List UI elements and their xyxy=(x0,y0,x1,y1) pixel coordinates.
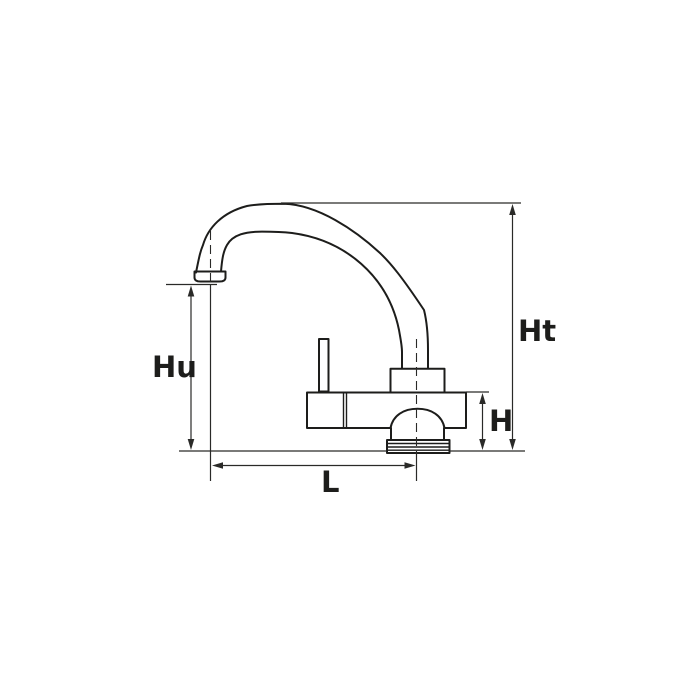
handle-lever xyxy=(319,339,329,392)
label-l: L xyxy=(321,465,339,499)
label-h: H xyxy=(489,404,513,438)
faucet-outline xyxy=(195,204,467,454)
label-ht: Ht xyxy=(518,314,556,348)
body-divider-line xyxy=(344,393,347,429)
dimension-lines: Hu Ht H L xyxy=(152,203,556,499)
spout-inner-curve xyxy=(221,232,402,369)
faucet-dimension-drawing: Hu Ht H L xyxy=(0,0,700,700)
dimension-l xyxy=(212,462,416,469)
dimension-h xyxy=(479,393,486,450)
diagram-page: Hu Ht H L xyxy=(0,0,700,700)
base-shank xyxy=(391,428,444,440)
label-hu: Hu xyxy=(152,350,197,384)
mounting-nut xyxy=(387,440,450,453)
base-dome xyxy=(391,409,445,428)
spout-outer-curve xyxy=(196,204,428,369)
spout-base-block xyxy=(391,369,445,392)
